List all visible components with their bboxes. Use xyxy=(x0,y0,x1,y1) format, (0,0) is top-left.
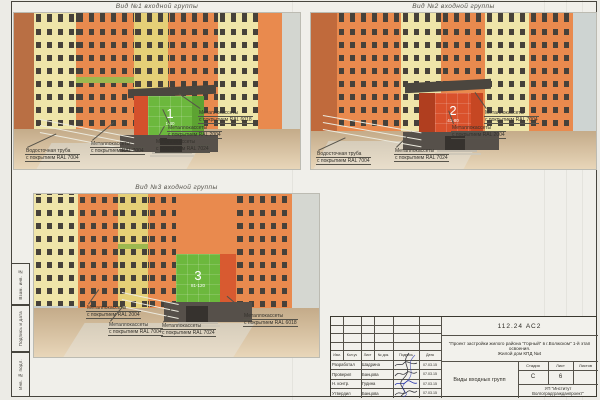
material-label: Металлокассеты с покрытием RAL 7024 xyxy=(161,323,216,337)
material-label: Металлокассеты с покрытием RAL 7004 xyxy=(90,141,145,155)
facade-panel xyxy=(14,13,34,131)
label-line: с покрытием RAL 7004 xyxy=(316,158,371,165)
doc-number: 112.24 АС2 xyxy=(441,317,598,335)
view-1-title: Вид №1 входной группы xyxy=(13,2,301,12)
title-block: Изм. Кол.уч Лист № док. Подпись Дата Раз… xyxy=(330,316,597,397)
view-2-title: Вид №2 входной группы xyxy=(310,2,597,12)
label-line: с покрытием RAL 7024 xyxy=(161,330,216,337)
project-title-line1: "Проект застройки жилого района "Горный"… xyxy=(443,341,596,351)
organization: УП "Институт Волгоградгражданпроект" xyxy=(519,385,597,397)
tb-line xyxy=(331,325,441,326)
material-label: Металлокассеты с покрытием RAL 2004 xyxy=(451,125,506,139)
label-line: с покрытием RAL 2004 xyxy=(451,132,506,139)
label-line: с покрытием RAL 6018 xyxy=(198,117,253,124)
material-label: Водосточная труба с покрытием RAL 7004 xyxy=(25,148,80,162)
label-line: Металлокассеты xyxy=(484,110,539,117)
label-line: с покрытием RAL 6018 xyxy=(243,320,298,327)
tb-line xyxy=(331,333,441,334)
label-line: с покрытием RAL 7024 xyxy=(155,146,210,153)
label-line: с покрытием RAL 2004 xyxy=(167,132,222,139)
facade-accent xyxy=(118,244,148,249)
sheet-value: 6 xyxy=(548,370,573,384)
sheet-label: Лист xyxy=(548,361,573,370)
material-label: Металлокассеты с покрытием RAL 7024 xyxy=(394,148,449,162)
tb-line xyxy=(331,342,441,343)
project-title-line2: Жилой дом КПД №4 xyxy=(498,351,541,356)
entrance-cube: 3 81-120 xyxy=(176,254,220,303)
facade-panel xyxy=(337,13,401,133)
material-label: Металлокассеты с покрытием RAL 7004 xyxy=(108,322,163,336)
view-1-render: 1 1-40 Металлокассеты с покрытием RAL 60… xyxy=(13,12,301,170)
stage-label: Стадия xyxy=(518,361,548,370)
label-line: Металлокассеты xyxy=(167,125,222,132)
label-line: с покрытием RAL 7004 xyxy=(25,155,80,162)
facade-panel xyxy=(176,194,236,254)
sheets-value xyxy=(573,370,598,384)
facade-panel xyxy=(34,13,76,132)
label-line: Металлокассеты xyxy=(243,313,298,320)
drawing-sheet: Взам. инв. № Подпись и дата Инв. № подл.… xyxy=(0,0,600,400)
col-koluch: Кол.уч xyxy=(343,350,361,360)
view-1: Вид №1 входной группы 1 1-40 xyxy=(13,2,301,170)
view-2: Вид №2 входной группы 2 41-80 xyxy=(310,2,597,170)
facade-panel xyxy=(76,13,134,133)
material-label: Металлокассеты с покрытием RAL 6018 xyxy=(198,110,253,124)
label-line: Металлокассеты xyxy=(161,323,216,330)
label-line: Металлокассеты xyxy=(198,110,253,117)
facade-panel xyxy=(236,194,292,312)
side-box-label: Подпись и дата xyxy=(18,311,23,346)
label-line: Металлокассеты xyxy=(155,139,210,146)
facade-panel xyxy=(148,194,176,310)
entrance-side xyxy=(419,93,435,134)
view-3-render: 3 81-120 Металлокассеты с покрытием RAL … xyxy=(33,193,320,358)
signature-flourish xyxy=(389,351,423,398)
sheets-label: Листов xyxy=(573,361,598,370)
apartment-range: 81-120 xyxy=(191,283,205,288)
label-line: Металлокассеты xyxy=(86,305,141,312)
drawing-name: Виды входных групп xyxy=(441,361,518,398)
row-role: Утвердил xyxy=(332,388,361,398)
label-line: Водосточная труба xyxy=(316,151,371,158)
material-label: Металлокассеты с покрытием RAL 7024 xyxy=(155,139,210,153)
project-title: "Проект застройки жилого района "Горный"… xyxy=(443,337,596,360)
side-box-label: Инв. № подл. xyxy=(18,359,23,390)
label-line: Водосточная труба xyxy=(25,148,80,155)
facade-accent xyxy=(76,77,134,83)
facade-panel xyxy=(34,194,78,306)
label-line: с покрытием RAL 7024 xyxy=(394,155,449,162)
label-line: Металлокассеты xyxy=(451,125,506,132)
entrance-step xyxy=(150,155,194,157)
label-line: Металлокассеты xyxy=(90,141,145,148)
label-line: Металлокассеты xyxy=(108,322,163,329)
material-label: Металлокассеты с покрытием RAL 6018 xyxy=(243,313,298,327)
material-label: Водосточная труба с покрытием RAL 7004 xyxy=(316,151,371,165)
entrance-side xyxy=(134,96,148,137)
row-role: Проверил xyxy=(332,369,361,379)
side-box-inv: Инв. № подл. xyxy=(11,352,30,397)
col-izm: Изм. xyxy=(331,350,343,360)
facade-panel xyxy=(258,13,282,137)
row-role: Н. контр. xyxy=(332,379,361,388)
label-line: с покрытием RAL 7004 xyxy=(484,117,539,124)
side-box-label: Взам. инв. № xyxy=(18,269,23,300)
entrance-number: 3 xyxy=(194,269,201,283)
view-2-render: 2 41-80 Металлокассеты с покрытием RAL 7… xyxy=(310,12,597,170)
view-3-title: Вид №3 входной группы xyxy=(33,183,320,193)
organization-line2: Волгоградгражданпроект" xyxy=(532,391,584,396)
side-box-vzam: Взам. инв. № xyxy=(11,263,30,305)
material-label: Металлокассеты с покрытием RAL 2004 xyxy=(167,125,222,139)
label-line: с покрытием RAL 7004 xyxy=(90,148,145,155)
col-list: Лист xyxy=(361,350,374,360)
tb-line xyxy=(441,335,598,336)
label-line: Металлокассеты xyxy=(394,148,449,155)
entrance-door xyxy=(186,306,208,322)
stage-value: С xyxy=(518,370,548,384)
side-box-podpis: Подпись и дата xyxy=(11,305,30,352)
label-line: с покрытием RAL 7004 xyxy=(108,329,163,336)
view-3: Вид №3 входной группы 3 81-120 xyxy=(33,183,320,358)
material-label: Металлокассеты с покрытием RAL 7004 xyxy=(484,110,539,124)
row-role: Разработал xyxy=(332,360,361,369)
